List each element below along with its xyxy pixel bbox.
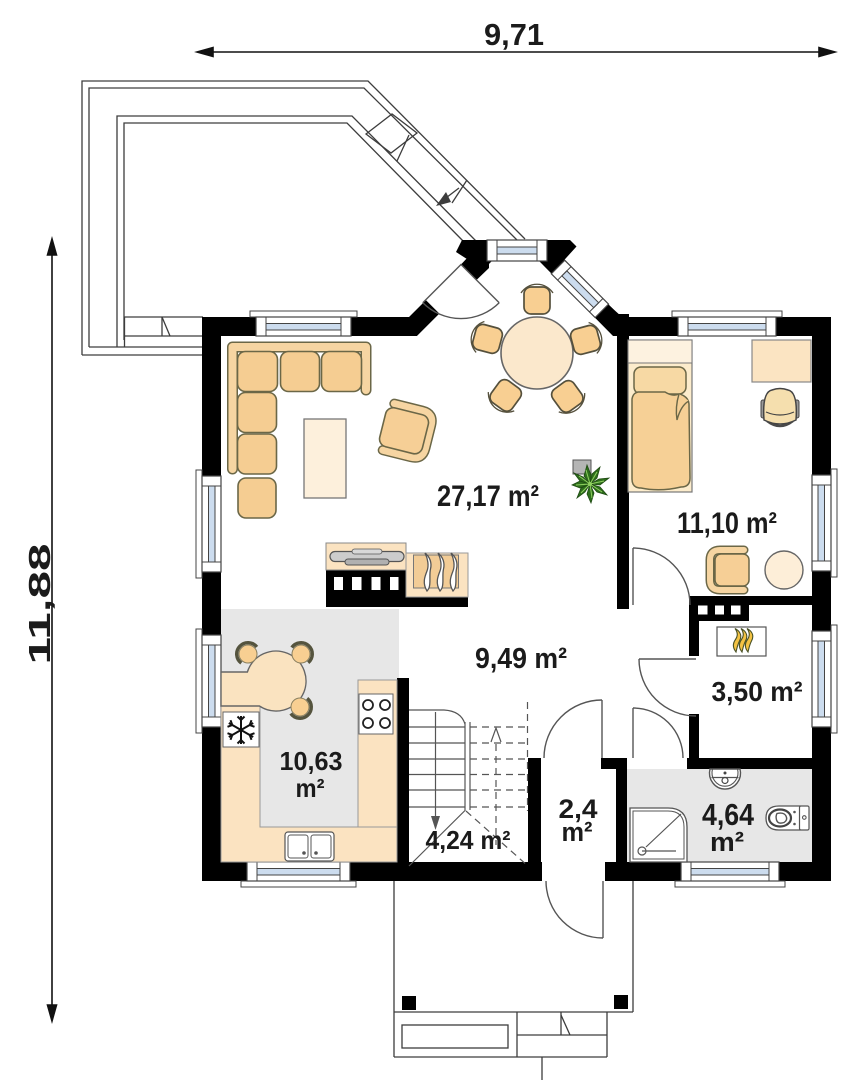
svg-text:9,49 m²: 9,49 m² bbox=[475, 643, 567, 675]
svg-text:27,17 m²: 27,17 m² bbox=[437, 480, 539, 513]
svg-text:m²: m² bbox=[296, 773, 325, 803]
svg-text:11,10 m²: 11,10 m² bbox=[677, 507, 777, 540]
svg-text:m²: m² bbox=[562, 817, 593, 847]
svg-text:4,24 m²: 4,24 m² bbox=[426, 825, 511, 855]
svg-text:9,71: 9,71 bbox=[484, 17, 544, 52]
svg-text:10,63: 10,63 bbox=[280, 746, 343, 776]
svg-text:3,50 m²: 3,50 m² bbox=[712, 676, 803, 707]
svg-text:m²: m² bbox=[710, 827, 744, 857]
svg-text:11,88: 11,88 bbox=[22, 544, 57, 665]
